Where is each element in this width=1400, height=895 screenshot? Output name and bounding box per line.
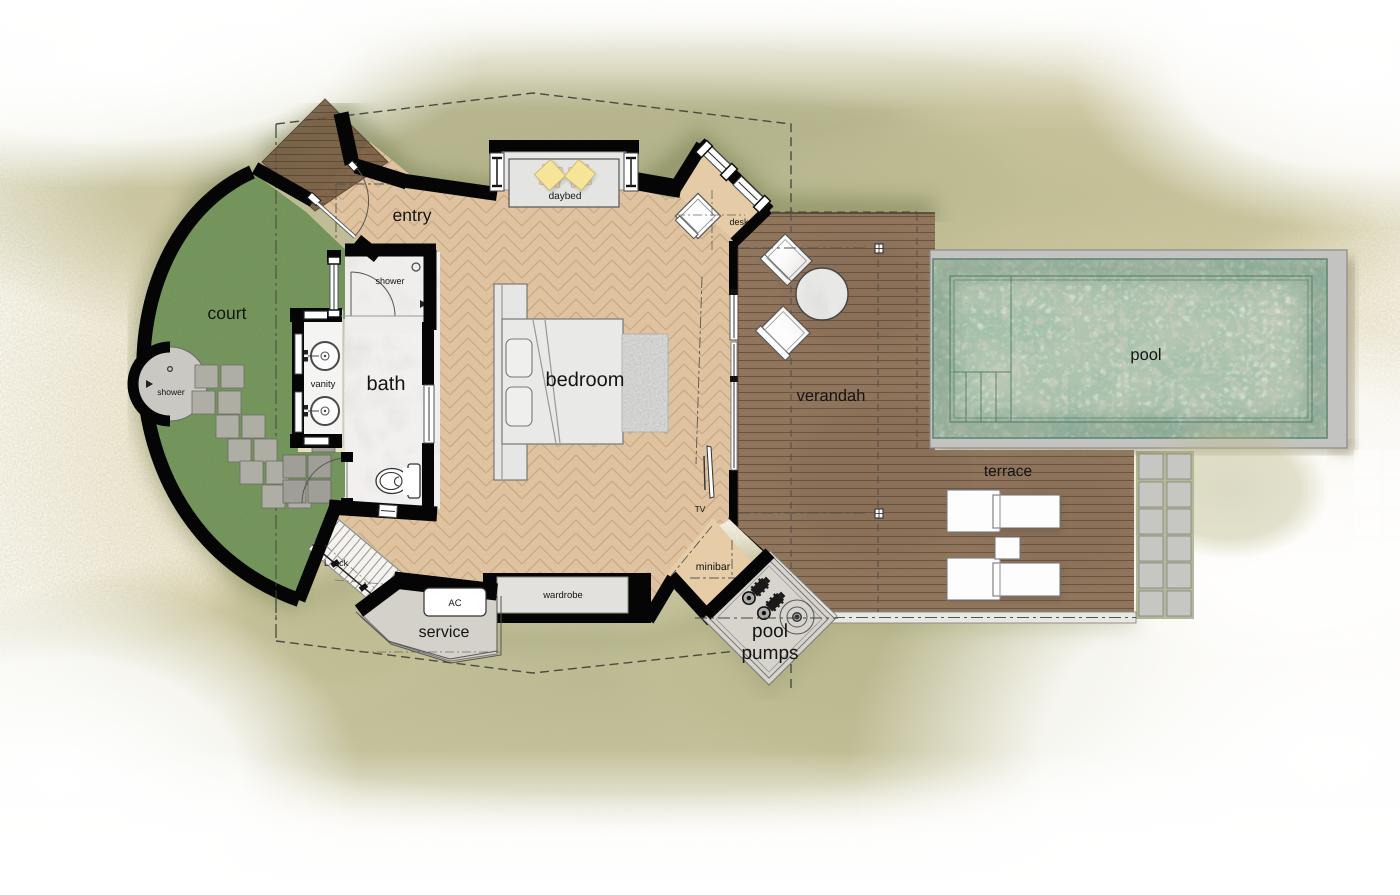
svg-text:service: service — [419, 624, 470, 641]
svg-text:entry: entry — [393, 205, 432, 225]
svg-text:minibar: minibar — [696, 561, 731, 573]
svg-text:L rack: L rack — [324, 558, 349, 568]
svg-text:pool: pool — [1130, 346, 1161, 364]
svg-text:bedroom: bedroom — [546, 369, 625, 391]
svg-text:terrace: terrace — [984, 463, 1032, 480]
svg-text:daybed: daybed — [549, 191, 582, 202]
svg-text:pool: pool — [752, 621, 788, 642]
svg-text:shower: shower — [375, 276, 404, 286]
svg-text:bath: bath — [367, 373, 406, 395]
svg-text:wardrobe: wardrobe — [542, 590, 583, 601]
svg-text:verandah: verandah — [797, 387, 866, 405]
svg-text:TV: TV — [695, 504, 706, 514]
svg-text:AC: AC — [448, 598, 461, 609]
svg-text:court: court — [208, 303, 247, 323]
svg-text:pumps: pumps — [741, 643, 798, 664]
svg-text:vanity: vanity — [311, 379, 336, 390]
svg-text:desk: desk — [729, 217, 749, 227]
svg-text:shower: shower — [157, 387, 185, 397]
